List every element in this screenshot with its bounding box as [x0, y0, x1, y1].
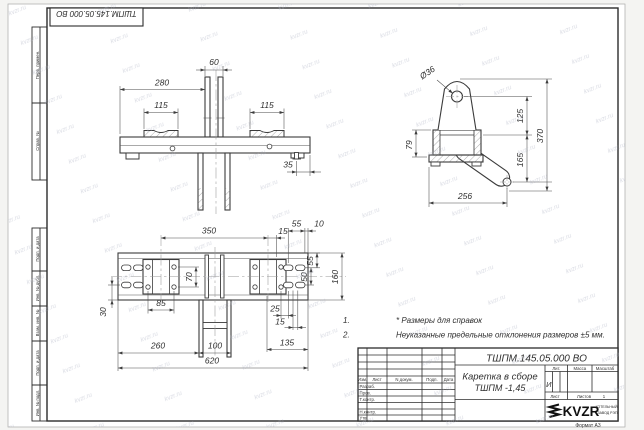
- row-prov: Пров.: [360, 391, 371, 396]
- plan-dim-100: 100: [208, 341, 222, 351]
- plan-dim-30: 30: [98, 307, 108, 317]
- side-dim-165: 165: [515, 153, 525, 167]
- margin-label-inv-dubl: Инв. № дубл.: [35, 275, 40, 302]
- plan-dim-70: 70: [184, 272, 194, 282]
- col-podp: Подп.: [426, 377, 437, 382]
- plan-dim-620: 620: [205, 356, 219, 366]
- plan-dim-50-right: 50: [299, 272, 309, 282]
- logo-org-line2: ЗАВОД РЭП: [597, 411, 618, 415]
- lit-value: И: [546, 380, 552, 389]
- front-dim-115-left: 115: [154, 100, 168, 110]
- front-bolt: [295, 153, 299, 160]
- drawing-svg: kvzr.ru Перв. примен. Справ. № Подп. и д…: [0, 0, 644, 430]
- row-tkontr: Т.контр.: [360, 397, 376, 402]
- logo-brand: KVZR: [563, 404, 600, 419]
- scale-label: Масштаб: [596, 366, 615, 371]
- note-2-text: Неуказанные предельные отклонения размер…: [396, 331, 605, 340]
- lit-label: Лит.: [552, 366, 560, 371]
- side-dim-125: 125: [515, 109, 525, 123]
- drawing-sheet: kvzr.ru Перв. примен. Справ. № Подп. и д…: [0, 0, 644, 430]
- margin-label-sprav-no: Справ. №: [35, 131, 40, 151]
- note-2-number: 2.: [342, 331, 350, 340]
- note-1-text: * Размеры для справок: [396, 316, 483, 325]
- plan-dim-55-right: 55: [305, 256, 315, 266]
- plan-dim-15b: 15: [275, 317, 285, 327]
- plan-dim-10-top: 10: [314, 219, 324, 229]
- side-dim-370: 370: [535, 129, 545, 143]
- side-dim-79: 79: [404, 140, 414, 150]
- margin-label-podp-data-2: Подп. и дата: [35, 350, 40, 376]
- front-dim-280: 280: [154, 78, 169, 88]
- sheet-label: Лист: [550, 394, 559, 399]
- logo-org-line1: КОТЕЛЬНЫЙ: [596, 405, 618, 409]
- corner-stamp-designation: ТШПМ.145.05.000 ВО: [56, 9, 137, 18]
- col-list: Лист: [372, 377, 381, 382]
- plan-dim-25: 25: [269, 304, 280, 314]
- col-data: Дата: [444, 377, 454, 382]
- front-dim-60: 60: [209, 57, 219, 67]
- title-part-name: Каретка в сборе: [462, 372, 537, 383]
- margin-label-inv-podl: Инв. № подл.: [35, 390, 40, 417]
- margin-label-podp-data-1: Подп. и дата: [35, 236, 40, 262]
- margin-label-vzam-inv: Взам. инв. №: [35, 309, 40, 336]
- format-note: Формат А3: [575, 423, 600, 429]
- plan-dim-160: 160: [330, 270, 340, 284]
- front-plate: [120, 137, 310, 153]
- col-doc: N докум.: [395, 377, 412, 382]
- row-nkontr: Н.контр.: [360, 410, 377, 415]
- title-part-model: ТШПМ -1,45: [475, 383, 527, 393]
- title-block: ТШПМ.145.05.000 ВО Каретка в сборе ТШПМ …: [358, 348, 618, 429]
- plan-dim-85: 85: [156, 298, 166, 308]
- row-razrab: Разраб.: [360, 384, 375, 389]
- plan-dim-350: 350: [202, 226, 216, 236]
- front-dim-115-right: 115: [260, 100, 274, 110]
- title-designation: ТШПМ.145.05.000 ВО: [486, 354, 587, 365]
- plan-dim-15: 15: [278, 226, 288, 236]
- front-dim-35: 35: [283, 160, 293, 170]
- plan-dim-260: 260: [150, 341, 165, 351]
- col-izm: Изм.: [358, 377, 367, 382]
- plan-dim-55-top: 55: [292, 219, 302, 229]
- massa-label: Масса: [573, 366, 586, 371]
- sheets-label: Листов: [577, 394, 592, 399]
- note-1-number: 1.: [343, 316, 350, 325]
- row-utv: Утв.: [360, 416, 368, 421]
- side-dim-256: 256: [457, 191, 472, 201]
- plan-dim-135: 135: [280, 338, 294, 348]
- margin-label-perv-primen: Перв. примен.: [35, 51, 40, 80]
